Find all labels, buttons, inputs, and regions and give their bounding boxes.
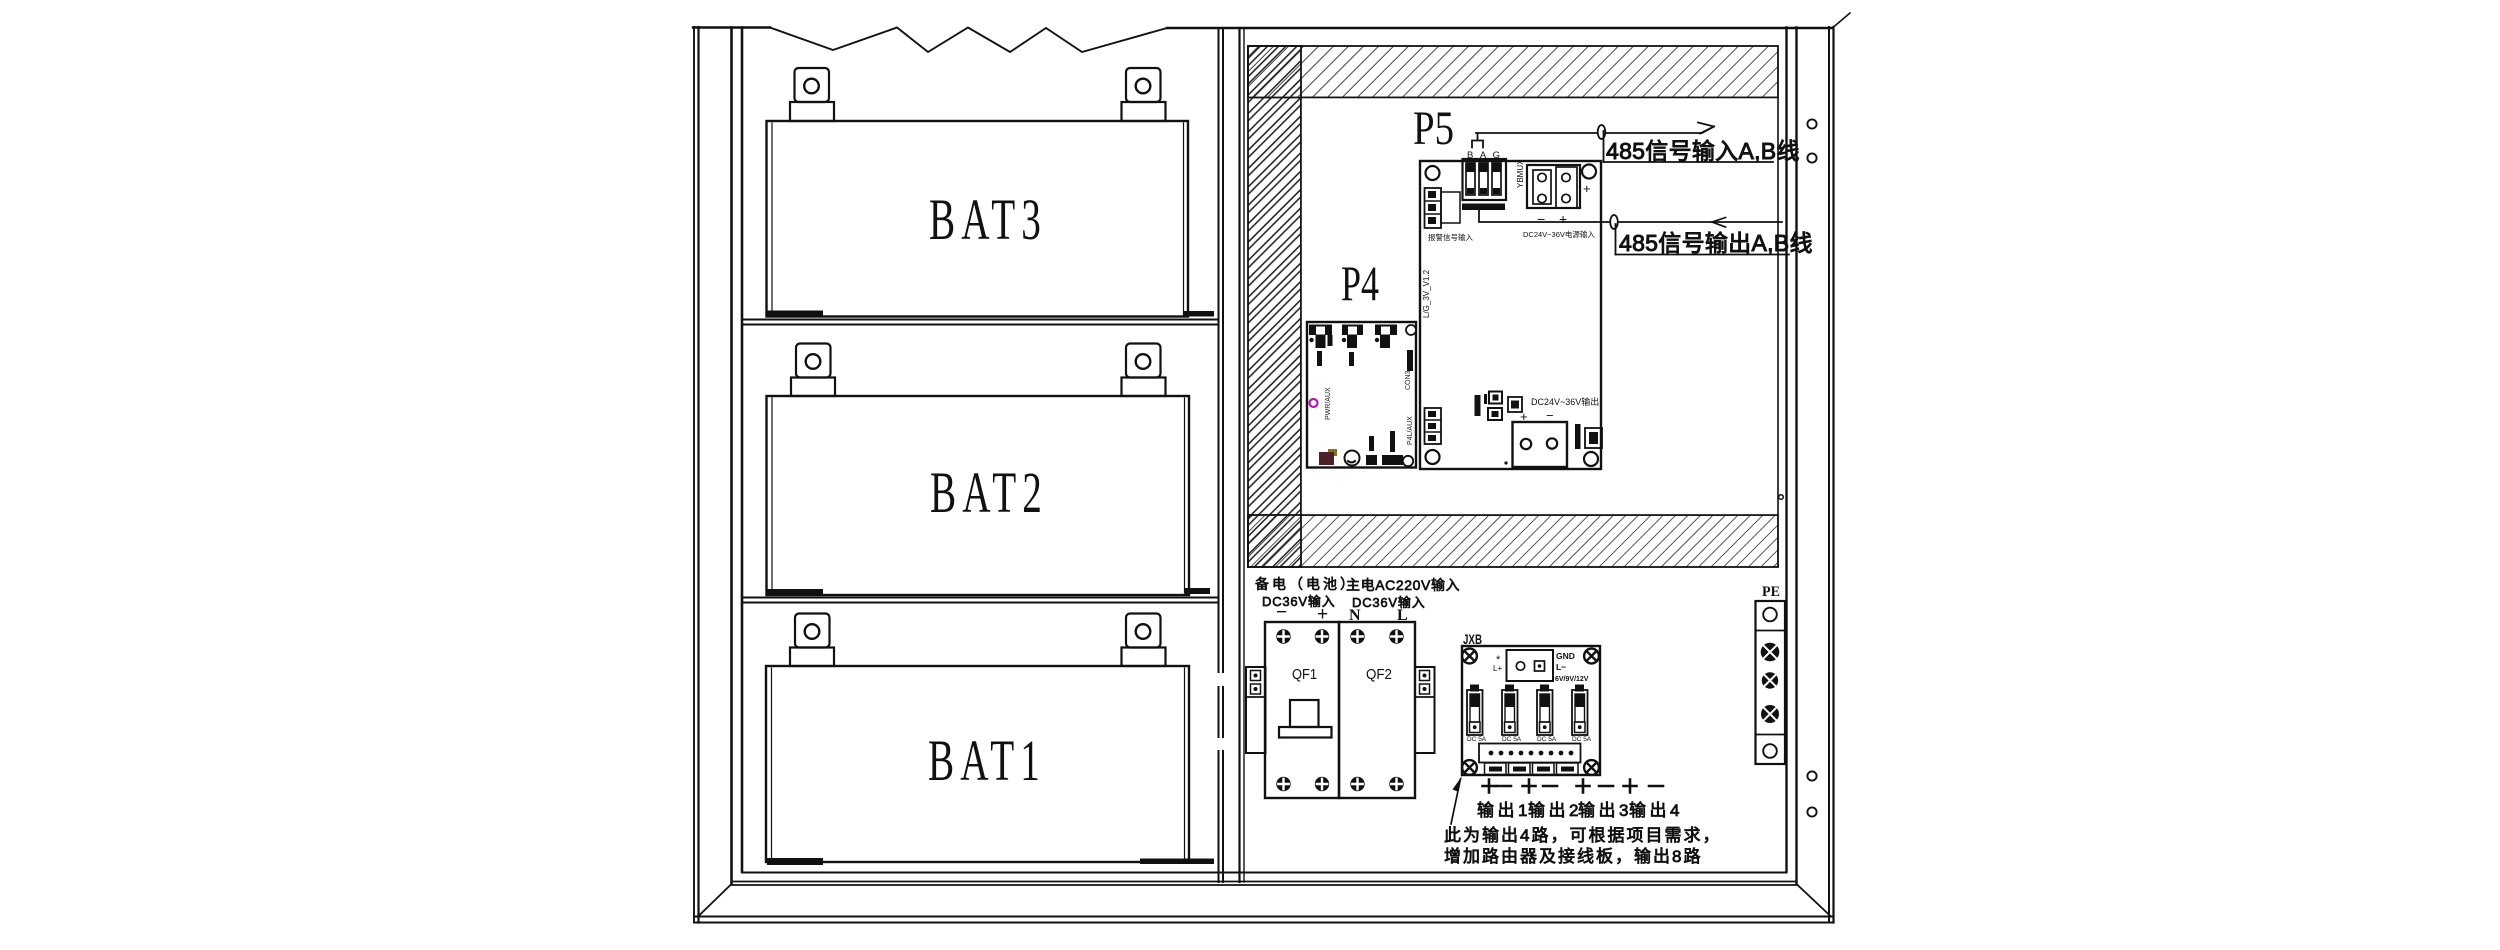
svg-text:P4L/AUX: P4L/AUX [1407,416,1414,445]
svg-text:QF1: QF1 [1292,666,1317,683]
svg-text:L−: L− [1556,662,1566,672]
svg-text:+: + [1583,181,1591,196]
svg-text:6V/9V/12V: 6V/9V/12V [1555,676,1589,683]
svg-text:BAT3: BAT3 [929,187,1047,252]
svg-text:GND: GND [1556,651,1575,661]
svg-text:PWR/AUX: PWR/AUX [1325,387,1332,420]
svg-text:P5: P5 [1413,102,1454,155]
svg-text:DC36V输入: DC36V输入 [1352,595,1426,610]
svg-text:P4: P4 [1341,255,1379,311]
svg-text:JXB: JXB [1463,631,1482,647]
svg-text:+: + [1520,409,1528,424]
svg-text:DC24V~36V电源输入: DC24V~36V电源输入 [1523,229,1595,239]
svg-text:−: − [1546,408,1554,423]
svg-text:PE: PE [1762,584,1780,600]
svg-text:YBMUX: YBMUX [1516,159,1525,188]
svg-text:报警信号输入: 报警信号输入 [1428,232,1473,242]
svg-text:L+: L+ [1493,664,1502,673]
svg-text:BAT1: BAT1 [928,728,1046,793]
svg-text:L/G_3V_V1.2: L/G_3V_V1.2 [1422,269,1431,318]
svg-text:DC 5A: DC 5A [1537,736,1557,743]
svg-text:输出1: 输出1 [1477,801,1531,820]
svg-text:BAT2: BAT2 [930,460,1048,525]
svg-text:此为输出4路，可根据项目需求，: 此为输出4路，可根据项目需求， [1444,826,1721,845]
svg-text:QF2: QF2 [1366,666,1392,683]
svg-text:输出3: 输出3 [1578,801,1632,820]
svg-text:+: + [1559,211,1567,227]
svg-text:−: − [1537,211,1545,227]
svg-text:DC 5A: DC 5A [1502,736,1522,743]
svg-text:输出2: 输出2 [1528,801,1582,820]
svg-text:−: − [1276,602,1287,623]
svg-text:备电（电池）: 备电（电池） [1255,576,1357,592]
svg-text:输出4: 输出4 [1629,801,1683,820]
svg-text:DC 5A: DC 5A [1467,736,1487,743]
svg-text:485信号输出A,B线: 485信号输出A,B线 [1619,230,1813,256]
svg-text:CON3: CON3 [1405,370,1412,390]
svg-text:DC 5A: DC 5A [1572,736,1592,743]
svg-text:主电AC220V输入: 主电AC220V输入 [1346,577,1460,593]
svg-text:增加路由器及接线板，输出8路: 增加路由器及接线板，输出8路 [1444,847,1702,866]
svg-text:DC24V~36V输出: DC24V~36V输出 [1531,396,1599,407]
svg-text:485信号输入A,B线: 485信号输入A,B线 [1606,138,1800,164]
